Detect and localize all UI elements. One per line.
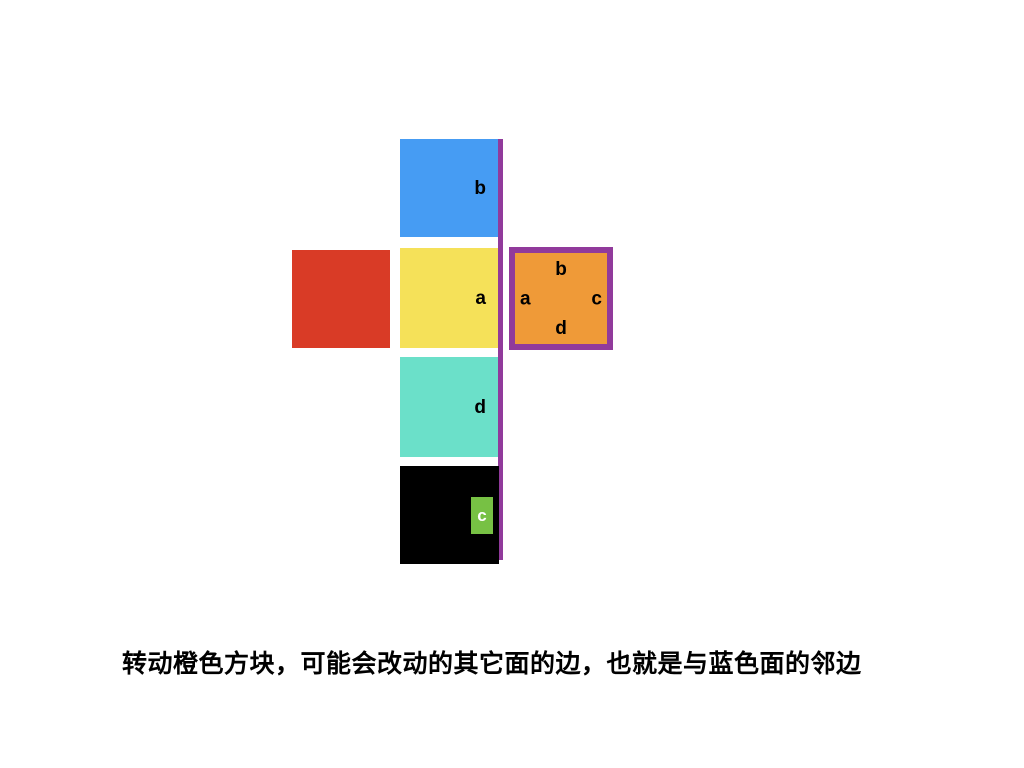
face-red [292,250,390,348]
face-yellow-label: a [475,289,486,308]
face-yellow: a [400,248,498,348]
face-orange: b a c d [509,247,613,350]
face-black-label: c [477,506,486,526]
caption-text: 转动橙色方块，可能会改动的其它面的边，也就是与蓝色面的邻边 [122,644,862,680]
face-blue: b [400,139,498,237]
orange-edge-label-right: c [591,289,602,308]
face-teal-label: d [474,398,486,417]
face-black-edge-badge: c [471,497,493,534]
orange-edge-label-left: a [520,289,531,308]
orange-edge-label-top: b [555,260,567,279]
face-teal: d [400,357,498,457]
face-blue-label: b [474,179,486,198]
orange-edge-label-bottom: d [555,319,567,338]
cube-net-diagram: b a b a c d d c 转动橙色方块，可能会改动的其它面的边，也就是与蓝… [0,0,1024,768]
face-black: c [400,466,499,564]
